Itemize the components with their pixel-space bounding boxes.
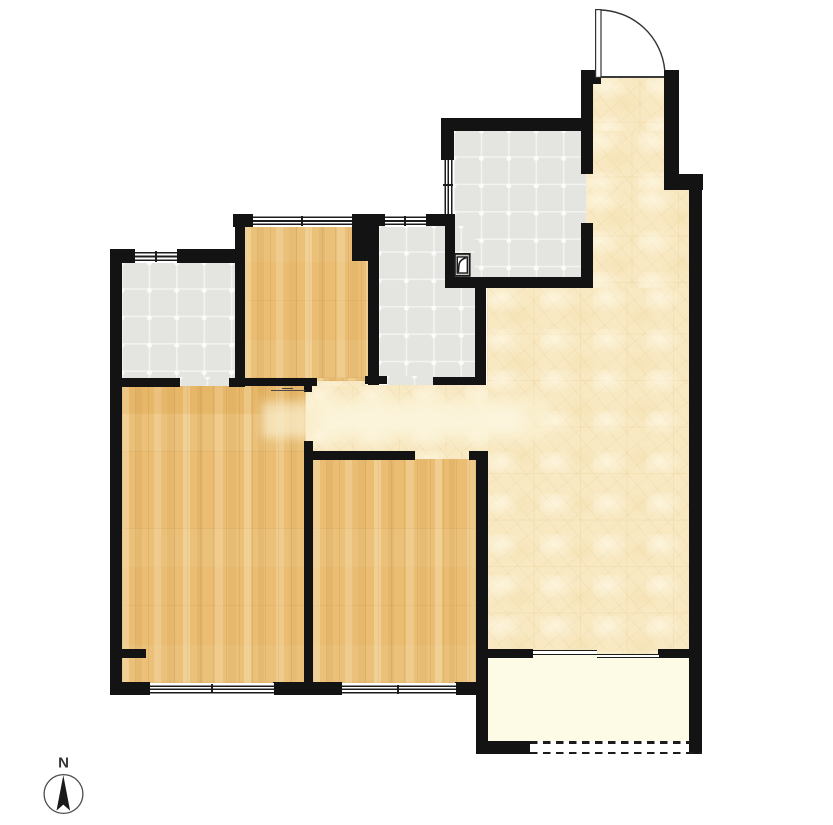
svg-text:N: N [58,755,69,772]
